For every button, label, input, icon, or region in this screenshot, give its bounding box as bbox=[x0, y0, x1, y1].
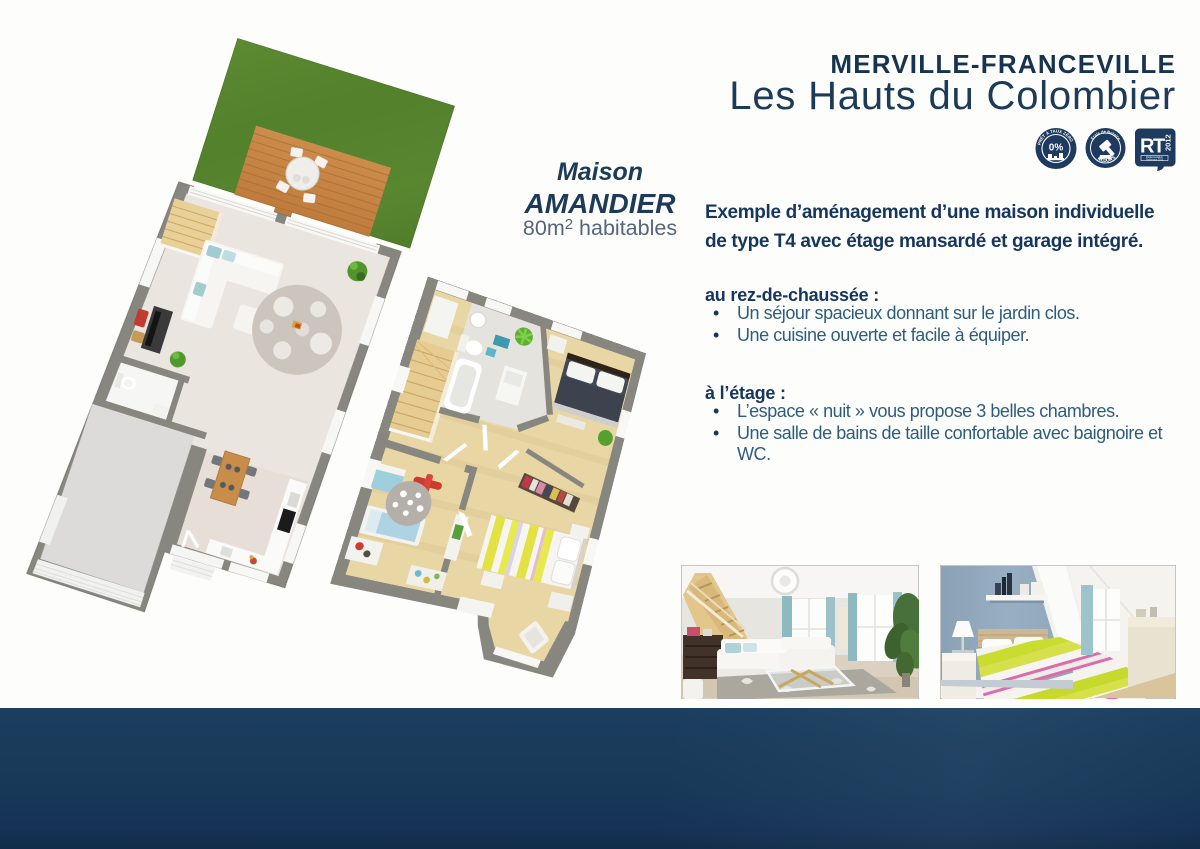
svg-text:0%: 0% bbox=[1049, 143, 1064, 154]
svg-text:2012: 2012 bbox=[1164, 134, 1173, 151]
svg-text:RT: RT bbox=[1140, 136, 1165, 158]
svg-text:Thermique 2012: Thermique 2012 bbox=[1146, 158, 1164, 161]
